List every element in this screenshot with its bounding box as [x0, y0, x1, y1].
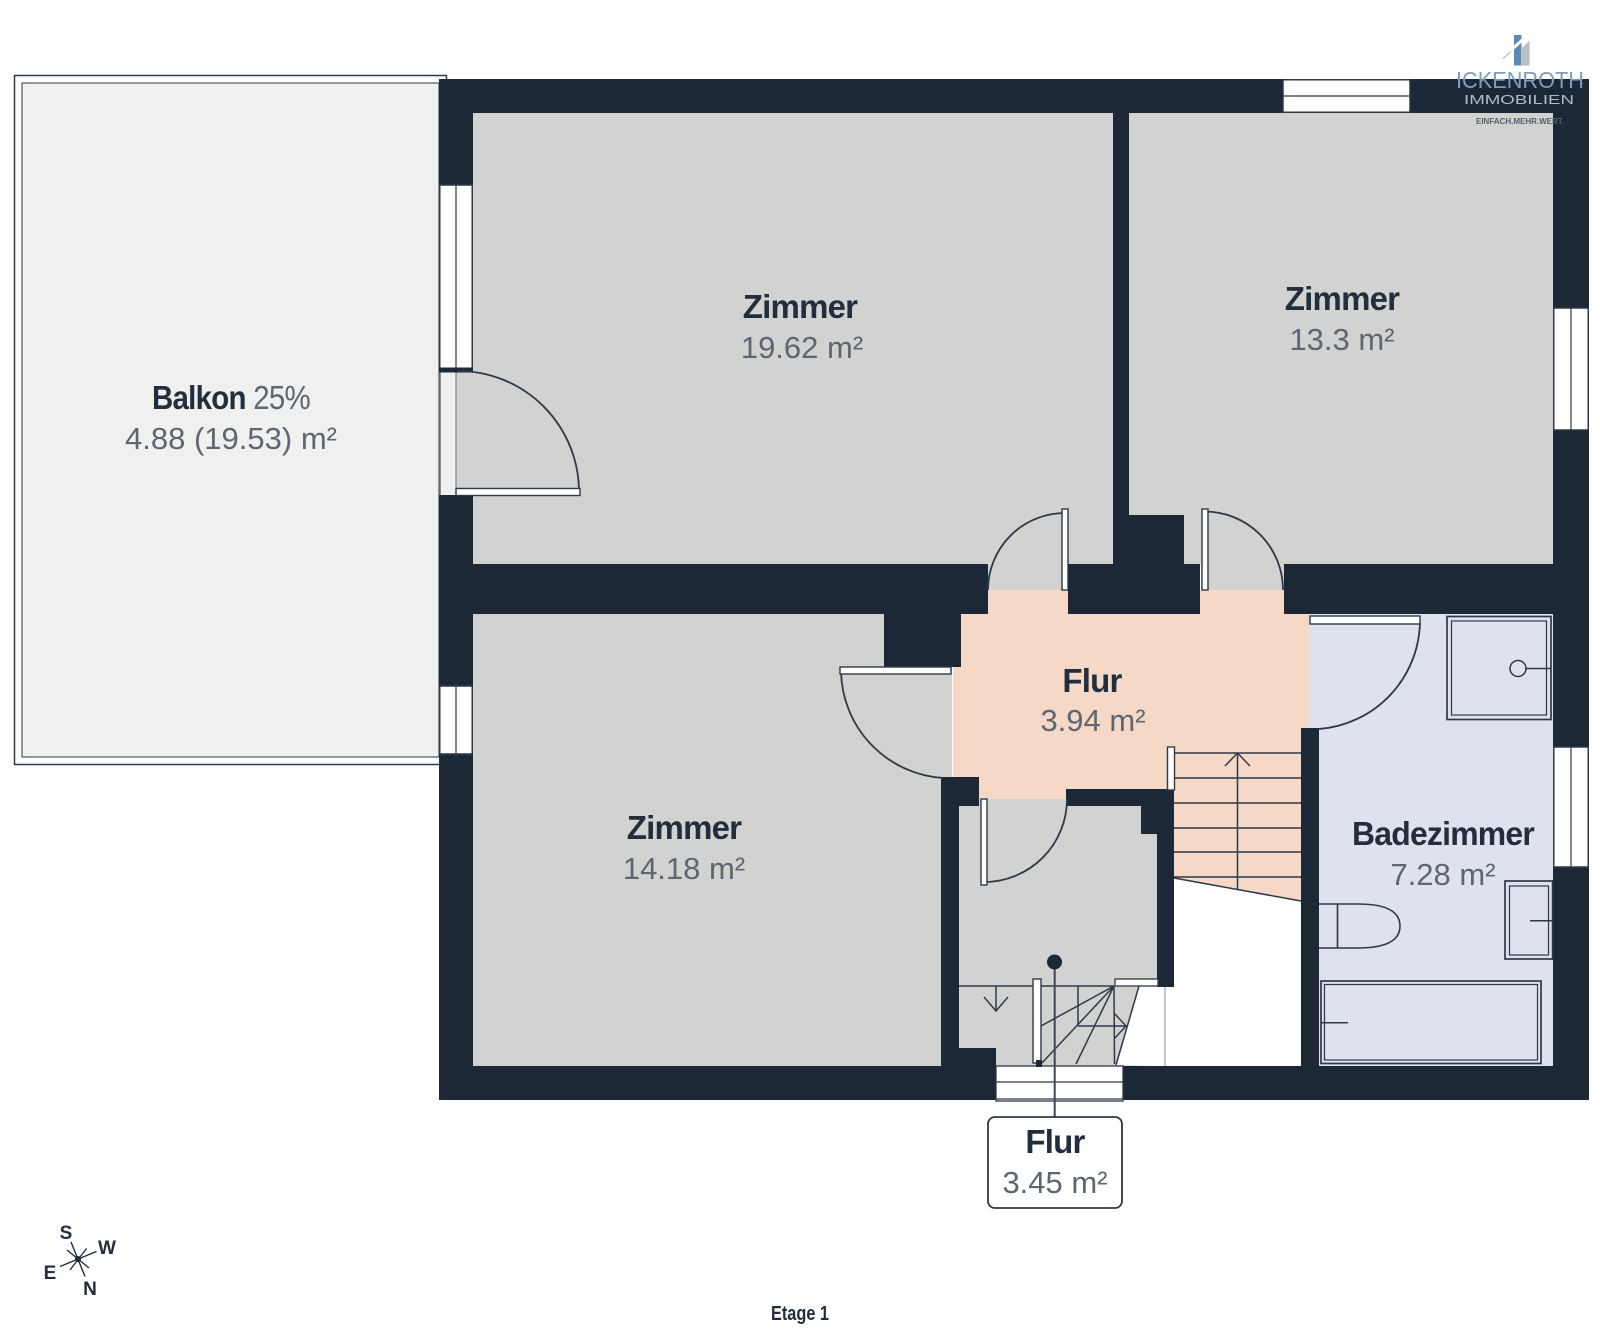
svg-text:14.18 m²: 14.18 m² — [623, 851, 745, 886]
svg-text:3.94 m²: 3.94 m² — [1040, 703, 1145, 738]
svg-text:Flur: Flur — [1025, 1123, 1085, 1160]
svg-text:E: E — [44, 1263, 57, 1284]
svg-text:S: S — [60, 1223, 73, 1244]
svg-text:4.88 (19.53) m²: 4.88 (19.53) m² — [125, 421, 337, 456]
svg-text:7.28 m²: 7.28 m² — [1390, 857, 1495, 892]
svg-text:W: W — [98, 1238, 116, 1259]
svg-text:N: N — [83, 1279, 97, 1300]
svg-text:19.62 m²: 19.62 m² — [741, 330, 863, 365]
svg-text:Balkon 25%: Balkon 25% — [152, 379, 310, 416]
svg-text:Etage 1: Etage 1 — [771, 1303, 829, 1325]
svg-text:EINFACH.MEHR.WERT.: EINFACH.MEHR.WERT. — [1476, 116, 1564, 126]
svg-text:13.3 m²: 13.3 m² — [1289, 322, 1394, 357]
svg-text:3.45 m²: 3.45 m² — [1002, 1165, 1107, 1200]
svg-text:Flur: Flur — [1062, 662, 1122, 699]
svg-text:ICKENROTH: ICKENROTH — [1456, 67, 1584, 93]
svg-text:Zimmer: Zimmer — [627, 809, 742, 846]
svg-text:Zimmer: Zimmer — [743, 288, 858, 325]
svg-text:IMMOBILIEN: IMMOBILIEN — [1464, 93, 1574, 107]
svg-text:Zimmer: Zimmer — [1285, 280, 1400, 317]
svg-text:Badezimmer: Badezimmer — [1352, 815, 1535, 852]
